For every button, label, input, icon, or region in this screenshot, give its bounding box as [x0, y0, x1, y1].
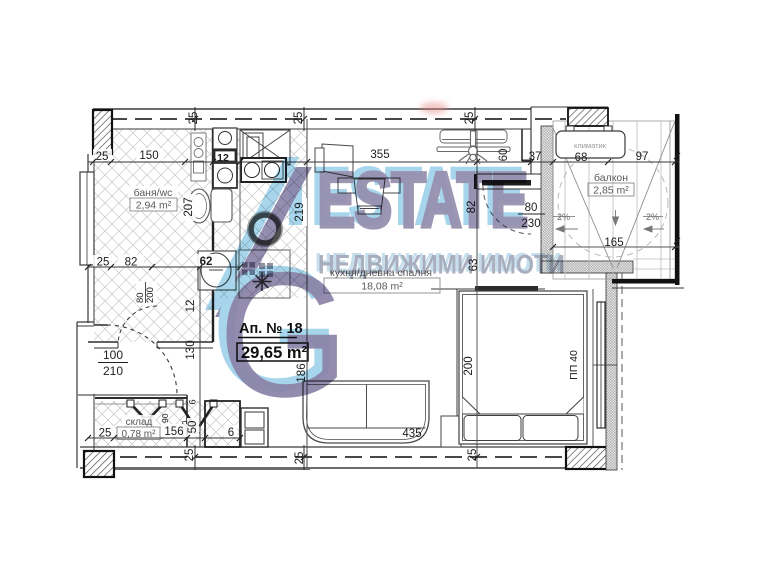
svg-text:2%: 2% — [557, 212, 570, 222]
svg-text:2,85 m²: 2,85 m² — [593, 185, 629, 197]
svg-text:ESTATE: ESTATE — [317, 155, 527, 244]
svg-text:50: 50 — [187, 421, 199, 434]
svg-text:25: 25 — [99, 428, 112, 440]
svg-text:баня/wc: баня/wc — [134, 187, 173, 199]
svg-text:25: 25 — [467, 449, 479, 462]
svg-text:ПП 40: ПП 40 — [568, 350, 580, 380]
svg-text:25: 25 — [464, 112, 476, 125]
svg-text:435: 435 — [402, 428, 421, 440]
svg-text:18,08 m²: 18,08 m² — [361, 281, 403, 293]
svg-text:6: 6 — [188, 399, 199, 404]
svg-text:25: 25 — [96, 151, 109, 163]
svg-text:165: 165 — [604, 237, 623, 249]
svg-text:210: 210 — [103, 364, 123, 378]
svg-text:12: 12 — [217, 152, 229, 164]
svg-text:90: 90 — [160, 413, 170, 423]
svg-text:200: 200 — [463, 356, 475, 375]
svg-text:2%: 2% — [646, 212, 659, 222]
svg-text:25: 25 — [293, 112, 305, 125]
svg-text:97: 97 — [636, 151, 649, 163]
svg-text:68: 68 — [575, 152, 588, 164]
svg-text:25: 25 — [294, 452, 306, 465]
svg-text:37: 37 — [529, 151, 542, 163]
svg-text:100: 100 — [103, 348, 123, 362]
svg-text:склад: склад — [126, 417, 153, 428]
svg-text:2,94 m²: 2,94 m² — [136, 200, 172, 212]
svg-text:25: 25 — [188, 112, 200, 125]
svg-text:150: 150 — [139, 150, 158, 162]
svg-text:207: 207 — [183, 197, 195, 216]
svg-text:климатик: климатик — [574, 141, 607, 150]
svg-text:балкон: балкон — [594, 172, 628, 184]
svg-text:130: 130 — [185, 340, 197, 359]
svg-text:25: 25 — [97, 257, 110, 269]
svg-text:200: 200 — [145, 287, 156, 303]
svg-text:25: 25 — [184, 449, 196, 462]
svg-text:12: 12 — [185, 300, 197, 313]
svg-text:НЕДВИЖИМИ ИМОТИ: НЕДВИЖИМИ ИМОТИ — [318, 250, 565, 280]
svg-text:156: 156 — [164, 426, 183, 438]
svg-text:82: 82 — [125, 257, 138, 269]
